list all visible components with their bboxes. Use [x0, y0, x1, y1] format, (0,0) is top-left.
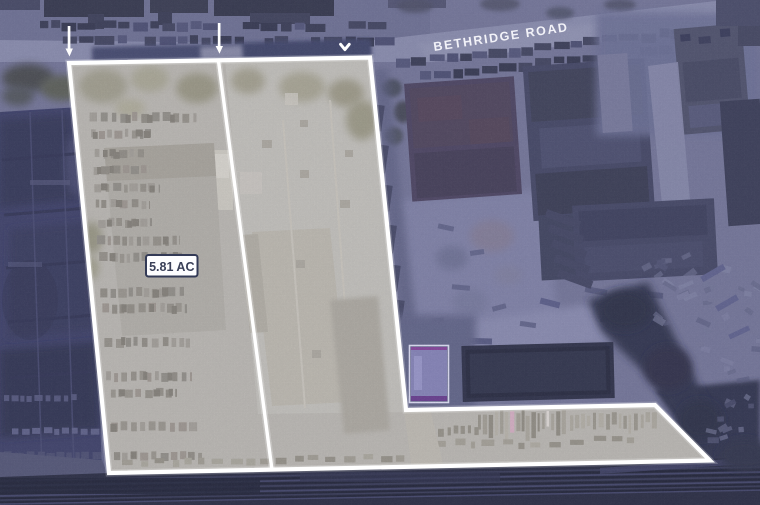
svg-text:5.81 AC: 5.81 AC	[149, 260, 194, 274]
